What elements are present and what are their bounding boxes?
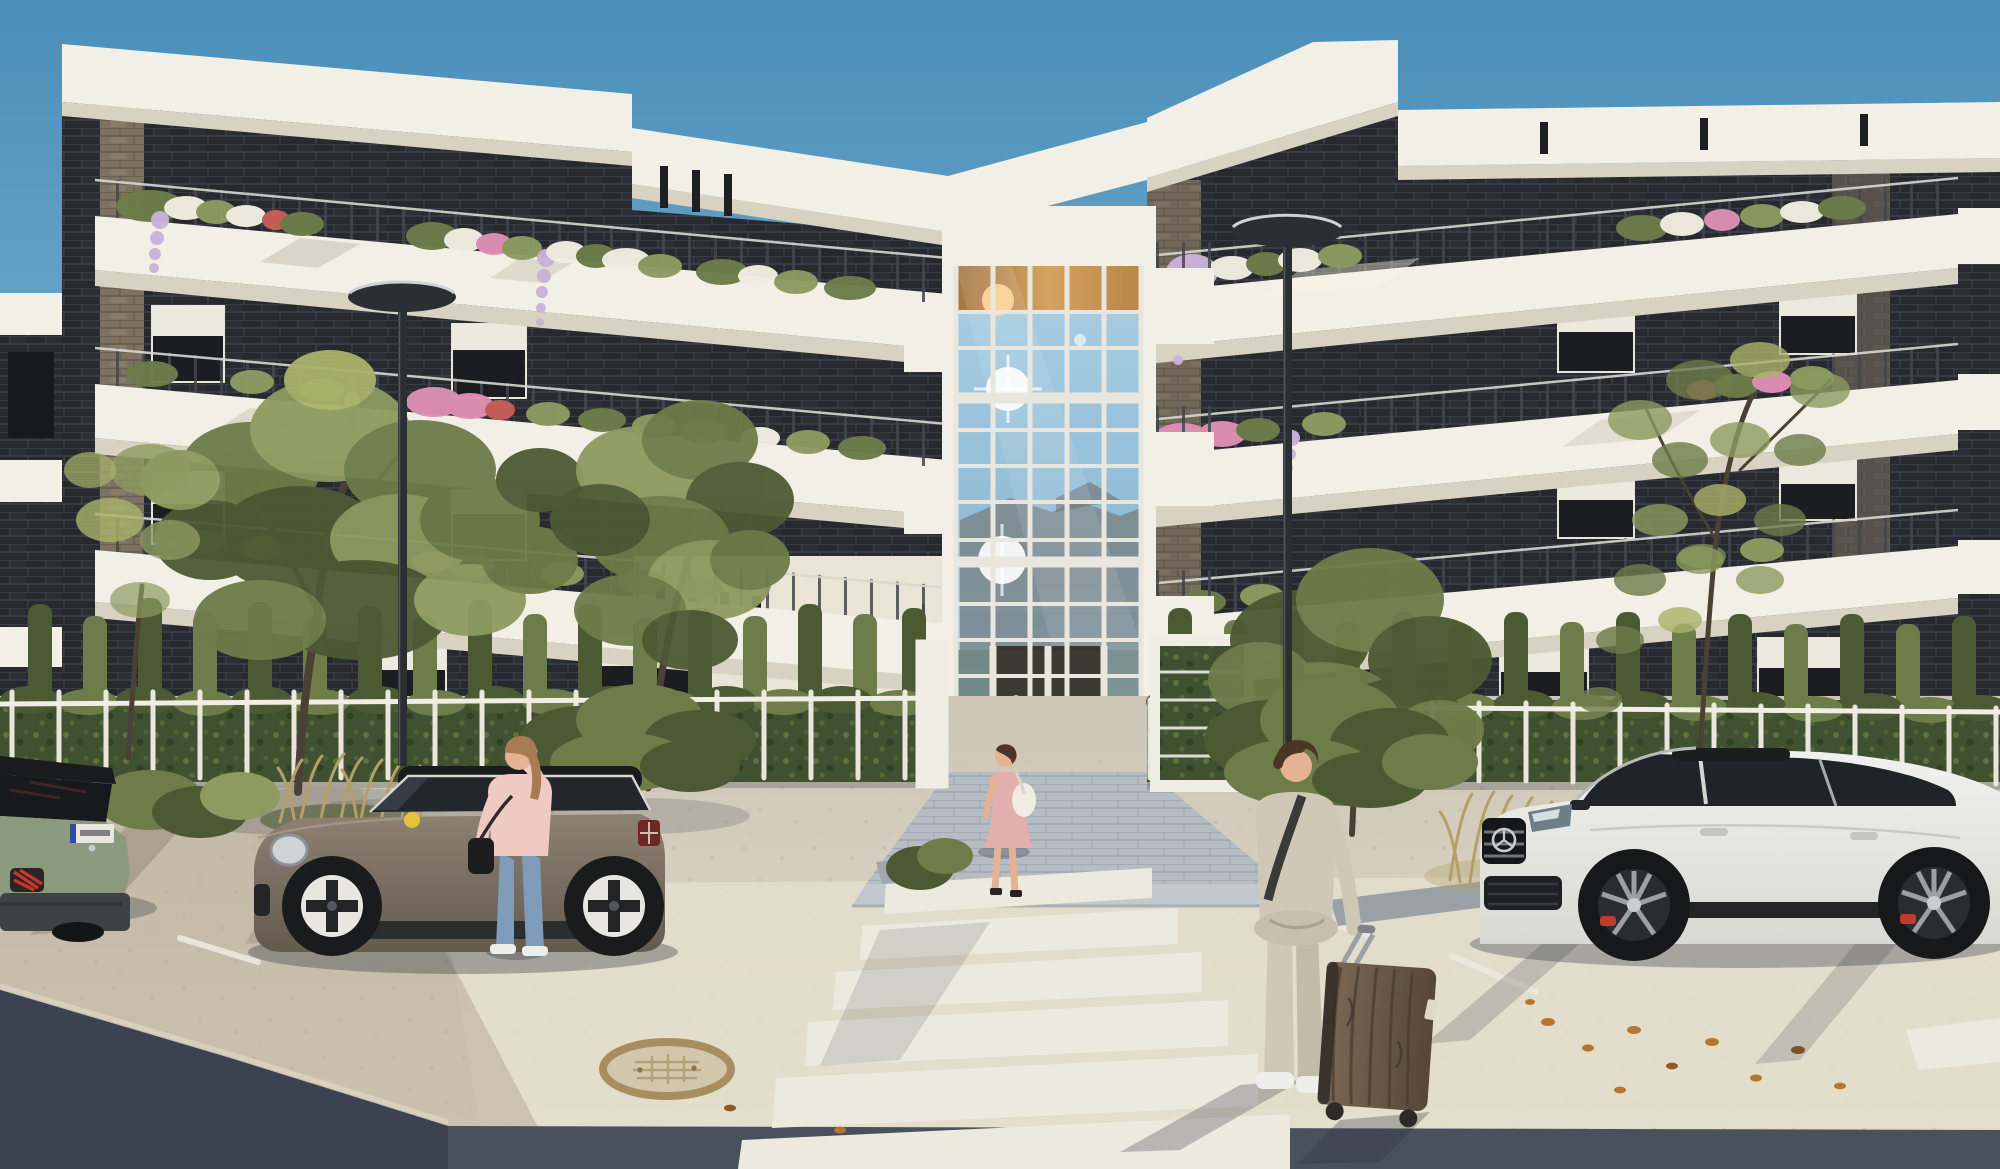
pant-leg <box>1264 930 1294 1076</box>
license-plate <box>70 824 114 843</box>
suv-door-handle <box>1700 828 1728 836</box>
suv-brand-badge <box>89 845 96 852</box>
sneaker <box>1256 1072 1294 1089</box>
suv-rear-wheel <box>1878 847 1990 959</box>
compact-suv-rear <box>0 756 130 942</box>
suv-mirror <box>1570 800 1590 810</box>
window-left-edge <box>8 352 54 438</box>
sneaker <box>490 944 516 954</box>
suv-sunroof <box>1672 748 1790 761</box>
heel-shoe <box>1010 890 1022 897</box>
mini-rear-wheel <box>564 856 664 956</box>
red-caliper <box>1600 916 1616 926</box>
sneaker <box>522 946 548 956</box>
suv-wheel <box>52 922 104 942</box>
suv-grille <box>1482 818 1526 864</box>
mini-front-wheel <box>282 856 382 956</box>
scene <box>0 0 2000 1169</box>
rendering-canvas <box>0 0 2000 1169</box>
suv-door-handle <box>1850 832 1878 840</box>
mini-headlight <box>271 835 307 865</box>
suv-front-wheel <box>1578 849 1690 961</box>
roof-right-low <box>1398 102 2000 166</box>
mini-grille <box>254 884 270 916</box>
red-caliper <box>1900 914 1916 924</box>
heel-shoe <box>990 888 1002 895</box>
mini-yellow-mirror <box>404 812 420 828</box>
leg <box>1012 846 1015 892</box>
leg <box>995 846 998 890</box>
handbag <box>468 838 494 874</box>
manhole-cover <box>603 1042 731 1096</box>
